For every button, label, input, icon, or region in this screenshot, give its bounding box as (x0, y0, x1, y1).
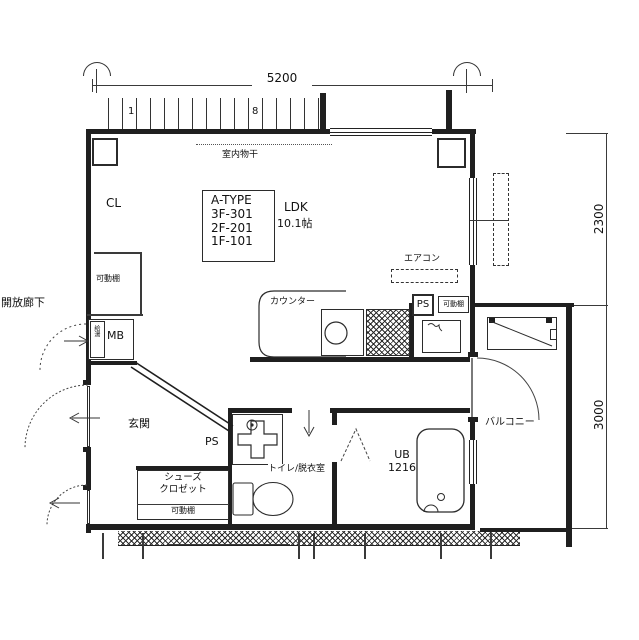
dimension-right-lower-label: 3000 (593, 393, 607, 437)
window-bath (469, 440, 477, 484)
kitchen-sink-unit (321, 309, 364, 356)
pan-corner (546, 318, 552, 323)
bath-counter (424, 505, 438, 512)
wall-bath-left (332, 462, 337, 528)
lower-floor-outline (168, 544, 290, 545)
balcony-wall-top (470, 303, 574, 307)
dimension-tick (566, 528, 608, 529)
unit-room-2f: 2F-201 (203, 222, 274, 236)
room-size-ldk: 10.1帖 (277, 218, 313, 231)
pan-fitting (550, 329, 557, 340)
dimension-tick (492, 79, 493, 92)
unit-room-1f: 1F-101 (203, 235, 274, 249)
grid-marker-icon (453, 62, 481, 76)
drying-pole-line (196, 144, 332, 146)
wall-washroom-top (230, 408, 292, 413)
shoe-closet-divider (137, 504, 229, 505)
bathtub (417, 429, 464, 512)
toilet-tank (233, 483, 253, 515)
lower-floor-outline (320, 545, 354, 546)
room-label-closet: CL (106, 197, 121, 211)
pipe-space-kitchen-label: PS (414, 296, 432, 314)
wall-west (86, 447, 91, 490)
movable-shelf-shoe-label: 可動棚 (138, 506, 228, 515)
door-jamb (468, 417, 478, 422)
room-label-bath: UB (380, 449, 424, 462)
floor-plan: 5200 2300 3000 1 8 (0, 0, 639, 640)
grid-marker-tick (96, 69, 97, 93)
entrance-door-leaf (87, 386, 90, 447)
thin-wall (87, 314, 143, 316)
door-arc-lower (47, 485, 87, 525)
wall-east (470, 484, 475, 528)
lower-floor-outline (440, 533, 442, 559)
dimension-right-upper-label: 2300 (593, 197, 607, 241)
thin-line (470, 220, 508, 221)
shoe-closet-label-1: シューズ (138, 473, 228, 484)
room-label-ldk: LDK (284, 201, 308, 215)
lower-floor-outline (364, 533, 366, 559)
wall-east (470, 265, 475, 357)
dimension-line-right (606, 133, 607, 529)
movable-shelf-label: 可動棚 (96, 274, 120, 283)
aircon-label: エアコン (404, 254, 440, 264)
lower-floor-outline (298, 533, 300, 559)
window-east (469, 178, 477, 265)
open-corridor-label: 開放廊下 (1, 297, 45, 310)
window-north (330, 128, 432, 136)
pipe-space-kitchen-box: PS (412, 294, 434, 316)
kitchen-stove (366, 309, 410, 356)
unit-type: A-TYPE (203, 191, 274, 208)
wall-kitchen-back (250, 357, 470, 362)
room-label-toilet: トイレ/脱衣室 (268, 464, 325, 474)
counter-label: カウンター (270, 297, 315, 307)
lower-floor-outline (490, 533, 492, 559)
column (437, 138, 466, 168)
wall-stub (320, 93, 326, 131)
door-leaf (87, 490, 90, 524)
lower-floor-outline (102, 533, 104, 559)
column (92, 138, 118, 166)
grid-marker-tick (466, 69, 467, 93)
dimension-tick (572, 305, 608, 306)
bathtub-drain (438, 494, 445, 501)
unit-info-box: A-TYPE 3F-301 2F-201 1F-101 (202, 190, 275, 262)
room-label-entrance: 玄関 (128, 418, 150, 431)
lower-floor-outline (142, 533, 144, 559)
wall-south (86, 524, 475, 530)
pan-corner (489, 318, 495, 323)
door-arc-entrance (25, 385, 88, 448)
indoor-drying-label: 室内物干 (222, 150, 258, 160)
door-arc-balcony (477, 358, 539, 420)
dimension-top-label: 5200 (252, 72, 312, 86)
wall-stub (446, 90, 452, 131)
grid-number-right: 8 (250, 106, 260, 118)
shoe-closet-label-2: クロゼット (138, 485, 228, 496)
railing-ticks (108, 98, 332, 130)
window-center-line (473, 440, 474, 484)
movable-shelf-kitchen-box: 可動棚 (438, 296, 469, 313)
aircon-unit-dashed (391, 269, 458, 283)
room-size-bath: 1216 (380, 462, 424, 475)
grid-number-left: 1 (126, 106, 136, 118)
water-heater-label: 給湯 (92, 325, 99, 337)
wall-bath-left (332, 413, 337, 425)
door-jamb (83, 447, 91, 452)
shelf-line (94, 252, 142, 254)
door-arc-mb (40, 324, 86, 370)
balcony-wall-bottom (480, 528, 570, 532)
balcony-wall-right (566, 303, 572, 547)
meter-box-label: MB (107, 330, 124, 343)
wall-mb-bottom (87, 361, 137, 365)
wall-washroom-top (330, 408, 470, 413)
bath-folding-door (341, 429, 370, 461)
window-center-line (473, 178, 474, 265)
movable-shelf-kitchen-label: 可動棚 (439, 297, 468, 312)
dimension-tick (92, 79, 93, 92)
pipe-space-entrance-label: PS (205, 436, 219, 449)
window-center-line (330, 132, 432, 133)
dimension-tick (566, 133, 608, 134)
grid-marker-icon (83, 62, 111, 76)
washer-pan (232, 414, 283, 465)
shelf-line (140, 254, 142, 314)
wall-east (470, 133, 475, 178)
room-label-balcony: バルコニー (485, 417, 535, 429)
lower-floor-outline (313, 533, 315, 559)
door-jamb (83, 380, 91, 385)
fridge-space (422, 320, 461, 353)
wall-east (470, 420, 475, 440)
unit-room-3f: 3F-301 (203, 208, 274, 222)
toilet-bowl (253, 483, 293, 516)
